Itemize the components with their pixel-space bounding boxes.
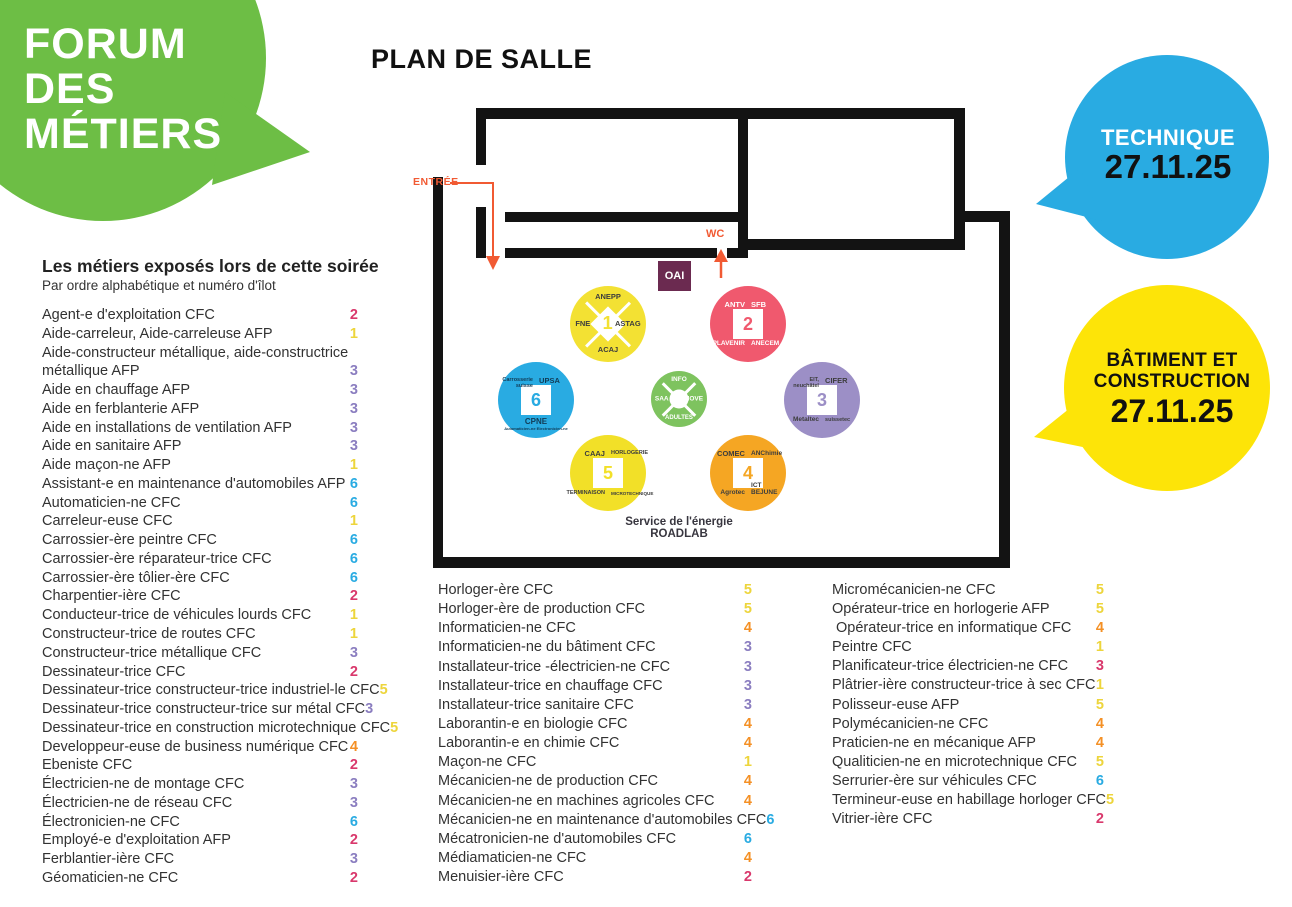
profession-label: Charpentier-ière CFC xyxy=(42,588,181,604)
profession-label: Mécanicien-ne en machines agricoles CFC xyxy=(438,793,714,809)
profession-label: Carreleur-euse CFC xyxy=(42,513,173,529)
stand-number: 6 xyxy=(1096,773,1104,789)
list-item: Constructeur-trice métallique CFC3 xyxy=(42,645,358,664)
org-label: SFB xyxy=(751,301,766,309)
stand-number: 1 xyxy=(350,513,358,529)
stand-number: 2 xyxy=(350,307,358,323)
list-item: Automaticien-ne CFC6 xyxy=(42,495,358,514)
stand-number: 3 xyxy=(350,438,358,454)
profession-label: Informaticien-ne CFC xyxy=(438,620,576,636)
profession-label: Aide en installations de ventilation AFP xyxy=(42,420,292,436)
stand-number: 4 xyxy=(1096,735,1104,751)
stand-number: 5 xyxy=(1096,582,1104,598)
list-item: Mécanicien-ne de production CFC4 xyxy=(438,773,752,792)
stand-number: 1 xyxy=(350,626,358,642)
profession-label: Dessinateur-trice constructeur-trice ind… xyxy=(42,682,380,698)
entrance-arrow xyxy=(450,183,500,270)
stand-number: 3 xyxy=(744,659,752,675)
stand-info: INFOSAAMOVEADULTES xyxy=(651,371,707,427)
org-label: CIFER xyxy=(825,377,848,385)
org-label: EIT, neuchâtel xyxy=(793,377,819,389)
stand-number: 2 xyxy=(350,757,358,773)
divider-line xyxy=(710,435,786,438)
list-item: Aide en ferblanterie AFP3 xyxy=(42,401,358,420)
org-label: suissetec xyxy=(825,417,850,423)
stand-number: 3 xyxy=(744,678,752,694)
profession-label: Installateur-trice en chauffage CFC xyxy=(438,678,663,694)
stand-number: 6 xyxy=(350,814,358,830)
profession-label: Médiamaticien-ne CFC xyxy=(438,850,586,866)
profession-label: Horloger-ère de production CFC xyxy=(438,601,645,617)
org-label: Automaticien-ne Electronicien-ne xyxy=(498,427,574,431)
list-item: Installateur-trice en chauffage CFC3 xyxy=(438,678,752,697)
stand-number: 2 xyxy=(744,869,752,885)
stand-number: 1 xyxy=(744,754,752,770)
profession-label: Opérateur-trice en horlogerie AFP xyxy=(832,601,1050,617)
org-label: ANECEM xyxy=(751,340,779,347)
technique-date: 27.11.25 xyxy=(1068,148,1268,186)
org-label: COMEC xyxy=(717,450,745,458)
profession-label: Developpeur-euse de business numérique C… xyxy=(42,739,348,755)
stand-number: 6 xyxy=(350,551,358,567)
org-label: ICT BEJUNE xyxy=(751,482,777,496)
list-item: Opérateur-trice en informatique CFC4 xyxy=(832,620,1104,639)
profession-label: Employé-e d'exploitation AFP xyxy=(42,832,231,848)
list-item: Électronicien-ne CFC6 xyxy=(42,814,358,833)
profession-label: Constructeur-trice de routes CFC xyxy=(42,626,256,642)
profession-label: Aide maçon-ne AFP xyxy=(42,457,171,473)
profession-label: Assistant-e en maintenance d'automobiles… xyxy=(42,476,345,492)
list-column-right: Micromécanicien-ne CFC5Opérateur-trice e… xyxy=(832,582,1104,830)
list-item: Polisseur-euse AFP5 xyxy=(832,697,1104,716)
brand-line-2: DES xyxy=(24,67,222,112)
list-item: Informaticien-ne CFC4 xyxy=(438,620,752,639)
stand-number: 5 xyxy=(1096,754,1104,770)
stand-number: 1 xyxy=(1096,639,1104,655)
stand-number: 2 xyxy=(1096,811,1104,827)
org-label: FNE xyxy=(575,320,590,328)
stand-number: 3 xyxy=(365,701,373,717)
list-item: Agent-e d'exploitation CFC2 xyxy=(42,307,358,326)
profession-label: métallique AFP xyxy=(42,363,140,379)
entrance-label: ENTRÉE xyxy=(413,176,459,188)
stand-number: 6 xyxy=(766,812,774,828)
list-item: Aide en chauffage AFP3 xyxy=(42,382,358,401)
list-item: Peintre CFC1 xyxy=(832,639,1104,658)
profession-label: Micromécanicien-ne CFC xyxy=(832,582,996,598)
stand-5: 5CAAJHORLOGERIETERMINAISONMICROTECHNIQUE xyxy=(570,435,646,511)
stand-number: 4 xyxy=(744,793,752,809)
oai-label: OAI xyxy=(658,261,691,291)
profession-label: Laborantin-e en biologie CFC xyxy=(438,716,627,732)
stand-number: 3 xyxy=(350,795,358,811)
profession-label: Plâtrier-ière constructeur-trice à sec C… xyxy=(832,677,1096,693)
profession-label: Aide-constructeur métallique, aide-const… xyxy=(42,345,348,361)
stand-number: 6 xyxy=(350,532,358,548)
profession-label: Électricien-ne de montage CFC xyxy=(42,776,244,792)
org-label: ASTAG xyxy=(615,320,641,328)
stand-number: 3 xyxy=(744,639,752,655)
profession-label: Polymécanicien-ne CFC xyxy=(832,716,988,732)
org-label: PLAVENIR xyxy=(713,340,745,347)
stand-number: 3 xyxy=(350,363,358,379)
stand-number: 3 xyxy=(744,697,752,713)
list-item: Aide en installations de ventilation AFP… xyxy=(42,420,358,439)
profession-label: Mécanicien-ne de production CFC xyxy=(438,773,658,789)
list-item: Électricien-ne de montage CFC3 xyxy=(42,776,358,795)
org-label: Metaltec xyxy=(793,416,819,423)
profession-label: Menuisier-ière CFC xyxy=(438,869,564,885)
stand-number: 3 xyxy=(350,382,358,398)
stand-number: 4 xyxy=(1096,620,1104,636)
divider-line xyxy=(570,435,646,438)
org-label: UPSA xyxy=(539,377,560,385)
profession-label: Termineur-euse en habillage horloger CFC xyxy=(832,792,1106,808)
org-label: HORLOGERIE xyxy=(611,450,648,456)
stand-number: 5 xyxy=(1096,697,1104,713)
org-label: Agrotec xyxy=(720,489,745,496)
org-label: MOVE xyxy=(684,395,703,402)
list-item: Laborantin-e en chimie CFC4 xyxy=(438,735,752,754)
stand-number: 1 xyxy=(1096,677,1104,693)
list-item: Aide maçon-ne AFP1 xyxy=(42,457,358,476)
org-label: MICROTECHNIQUE xyxy=(611,491,653,496)
list-item: Médiamaticien-ne CFC4 xyxy=(438,850,752,869)
list-item: Ferblantier-ière CFC3 xyxy=(42,851,358,870)
profession-label: Ferblantier-ière CFC xyxy=(42,851,174,867)
list-item: Mécanicien-ne en machines agricoles CFC4 xyxy=(438,793,752,812)
list-item: Dessinateur-trice constructeur-trice ind… xyxy=(42,682,358,701)
list-item: Micromécanicien-ne CFC5 xyxy=(832,582,1104,601)
divider-line xyxy=(710,286,786,289)
org-label: ANEPP xyxy=(570,293,646,301)
stand-number: 3 xyxy=(350,851,358,867)
stand-1: 1ANEPPFNEASTAGACAJ xyxy=(570,286,646,362)
profession-label: Automaticien-ne CFC xyxy=(42,495,181,511)
org-label: CAAJ xyxy=(585,450,605,458)
list-item: Assistant-e en maintenance d'automobiles… xyxy=(42,476,358,495)
stand-number: 5 xyxy=(380,682,388,698)
profession-label: Planificateur-trice électricien-ne CFC xyxy=(832,658,1068,674)
list-item: Carrossier-ère peintre CFC6 xyxy=(42,532,358,551)
divider-line xyxy=(498,362,574,365)
profession-label: Agent-e d'exploitation CFC xyxy=(42,307,215,323)
list-item: Dessinateur-trice constructeur-trice sur… xyxy=(42,701,358,720)
list-item: Installateur-trice sanitaire CFC3 xyxy=(438,697,752,716)
stand-number: 6 xyxy=(350,570,358,586)
list-item: Géomaticien-ne CFC2 xyxy=(42,870,358,889)
profession-label: Constructeur-trice métallique CFC xyxy=(42,645,261,661)
stand-number: 6 xyxy=(744,831,752,847)
stand-number: 5 xyxy=(1106,792,1114,808)
brand-title: FORUM DES MÉTIERS xyxy=(24,22,222,157)
list-item: Aide-carreleur, Aide-carreleuse AFP1 xyxy=(42,326,358,345)
profession-label: Carrossier-ère peintre CFC xyxy=(42,532,217,548)
profession-label: Dessinateur-trice en construction microt… xyxy=(42,720,390,736)
list-item: Aide-constructeur métallique, aide-const… xyxy=(42,345,358,364)
profession-label: Informaticien-ne du bâtiment CFC xyxy=(438,639,656,655)
list-item: Constructeur-trice de routes CFC1 xyxy=(42,626,358,645)
org-label: ADULTES xyxy=(651,415,707,422)
profession-label: Qualiticien-ne en microtechnique CFC xyxy=(832,754,1077,770)
stand-number-badge: 5 xyxy=(593,458,623,488)
list-item: Menuisier-ière CFC2 xyxy=(438,869,752,888)
profession-label: Laborantin-e en chimie CFC xyxy=(438,735,619,751)
service-label-line1: Service de l'énergie xyxy=(579,516,779,528)
profession-label: Aide-carreleur, Aide-carreleuse AFP xyxy=(42,326,273,342)
stand-6: 6Carrosserie suisseUPSACPNEAutomaticien-… xyxy=(498,362,574,438)
profession-label: Ebeniste CFC xyxy=(42,757,132,773)
profession-label: Aide en chauffage AFP xyxy=(42,382,190,398)
stand-number: 3 xyxy=(350,776,358,792)
list-item: Employé-e d'exploitation AFP2 xyxy=(42,832,358,851)
list-column-middle: Horloger-ère CFC5Horloger-ère de product… xyxy=(438,582,752,888)
list-item: métallique AFP3 xyxy=(42,363,358,382)
org-label: ANTV xyxy=(725,301,745,309)
list-item: Carreleur-euse CFC1 xyxy=(42,513,358,532)
divider-line xyxy=(784,362,860,365)
stand-number: 4 xyxy=(744,735,752,751)
profession-label: Conducteur-trice de véhicules lourds CFC xyxy=(42,607,311,623)
stand-number: 5 xyxy=(744,582,752,598)
brand-line-3: MÉTIERS xyxy=(24,112,222,157)
list-item: Opérateur-trice en horlogerie AFP5 xyxy=(832,601,1104,620)
stand-number: 3 xyxy=(350,420,358,436)
profession-label: Installateur-trice -électricien-ne CFC xyxy=(438,659,670,675)
list-item: Installateur-trice -électricien-ne CFC3 xyxy=(438,659,752,678)
list-item: Mécanicien-ne en maintenance d'automobil… xyxy=(438,812,752,831)
list-item: Conducteur-trice de véhicules lourds CFC… xyxy=(42,607,358,626)
list-item: Serrurier-ère sur véhicules CFC6 xyxy=(832,773,1104,792)
profession-label: Horloger-ère CFC xyxy=(438,582,553,598)
stand-number: 3 xyxy=(350,401,358,417)
stand-4: 4COMECANChimieAgrotecICT BEJUNE xyxy=(710,435,786,511)
list-item: Électricien-ne de réseau CFC3 xyxy=(42,795,358,814)
list-subtitle: Par ordre alphabétique et numéro d'îlot xyxy=(42,278,276,293)
stand-number: 4 xyxy=(744,716,752,732)
list-item: Vitrier-ière CFC2 xyxy=(832,811,1104,830)
profession-label: Installateur-trice sanitaire CFC xyxy=(438,697,634,713)
stand-number-badge: 2 xyxy=(733,309,763,339)
stand-number: 5 xyxy=(390,720,398,736)
org-label: SAA xyxy=(655,395,669,402)
stand-number: 4 xyxy=(744,620,752,636)
batiment-label-line2: CONSTRUCTION xyxy=(1072,371,1272,393)
profession-label: Mécatronicien-ne d'automobiles CFC xyxy=(438,831,676,847)
list-item: Mécatronicien-ne d'automobiles CFC6 xyxy=(438,831,752,850)
profession-label: Aide en sanitaire AFP xyxy=(42,438,181,454)
stand-number: 4 xyxy=(744,850,752,866)
list-item: Praticien-ne en mécanique AFP4 xyxy=(832,735,1104,754)
profession-label: Dessinateur-trice constructeur-trice sur… xyxy=(42,701,365,717)
org-label: INFO xyxy=(651,376,707,383)
stand-number: 2 xyxy=(350,664,358,680)
stand-number: 1 xyxy=(350,607,358,623)
list-item: Ebeniste CFC2 xyxy=(42,757,358,776)
page-title: PLAN DE SALLE xyxy=(371,44,592,75)
stand-number: 3 xyxy=(1096,658,1104,674)
list-item: Aide en sanitaire AFP3 xyxy=(42,438,358,457)
wc-label: WC xyxy=(706,228,724,240)
list-item: Termineur-euse en habillage horloger CFC… xyxy=(832,792,1104,811)
stand-number: 1 xyxy=(603,313,613,334)
list-title: Les métiers exposés lors de cette soirée xyxy=(42,256,379,277)
profession-label: Polisseur-euse AFP xyxy=(832,697,959,713)
list-item: Plâtrier-ière constructeur-trice à sec C… xyxy=(832,677,1104,696)
profession-label: Vitrier-ière CFC xyxy=(832,811,932,827)
org-label: TERMINAISON xyxy=(566,490,605,496)
profession-label: Carrossier-ère tôlier-ère CFC xyxy=(42,570,230,586)
list-item: Charpentier-ière CFC2 xyxy=(42,588,358,607)
list-item: Polymécanicien-ne CFC4 xyxy=(832,716,1104,735)
batiment-label-line1: BÂTIMENT ET xyxy=(1072,350,1272,372)
stand-number-badge: 6 xyxy=(521,385,551,415)
list-item: Planificateur-trice électricien-ne CFC3 xyxy=(832,658,1104,677)
batiment-date: 27.11.25 xyxy=(1072,393,1272,430)
service-label-line2: ROADLAB xyxy=(579,528,779,540)
profession-label: Mécanicien-ne en maintenance d'automobil… xyxy=(438,812,766,828)
org-label: ACAJ xyxy=(570,346,646,354)
stand-number: 4 xyxy=(1096,716,1104,732)
profession-label: Peintre CFC xyxy=(832,639,912,655)
org-label: ANChimie xyxy=(751,450,782,457)
profession-label: Aide en ferblanterie AFP xyxy=(42,401,199,417)
stand-number: 4 xyxy=(350,739,358,755)
profession-label: Praticien-ne en mécanique AFP xyxy=(832,735,1036,751)
list-item: Horloger-ère CFC5 xyxy=(438,582,752,601)
profession-label: Électricien-ne de réseau CFC xyxy=(42,795,232,811)
stand-number: 5 xyxy=(1096,601,1104,617)
list-item: Dessinateur-trice en construction microt… xyxy=(42,720,358,739)
list-item: Qualiticien-ne en microtechnique CFC5 xyxy=(832,754,1104,773)
list-item: Maçon-ne CFC1 xyxy=(438,754,752,773)
list-item: Informaticien-ne du bâtiment CFC3 xyxy=(438,639,752,658)
list-item: Developpeur-euse de business numérique C… xyxy=(42,739,358,758)
stand-number-badge: 3 xyxy=(807,385,837,415)
stand-number: 5 xyxy=(744,601,752,617)
list-item: Carrossier-ère réparateur-trice CFC6 xyxy=(42,551,358,570)
list-item: Horloger-ère de production CFC5 xyxy=(438,601,752,620)
stand-3: 3EIT, neuchâtelCIFERMetaltecsuissetec xyxy=(784,362,860,438)
brand-line-1: FORUM xyxy=(24,22,222,67)
profession-label: Dessinateur-trice CFC xyxy=(42,664,185,680)
profession-label: Maçon-ne CFC xyxy=(438,754,536,770)
stand-number: 6 xyxy=(350,476,358,492)
profession-label: Carrossier-ère réparateur-trice CFC xyxy=(42,551,272,567)
list-item: Laborantin-e en biologie CFC4 xyxy=(438,716,752,735)
profession-label: Serrurier-ère sur véhicules CFC xyxy=(832,773,1037,789)
stand-number: 1 xyxy=(350,457,358,473)
profession-label: Électronicien-ne CFC xyxy=(42,814,180,830)
stand-number: 2 xyxy=(350,870,358,886)
org-label: Carrosserie suisse xyxy=(502,377,533,389)
stand-number: 6 xyxy=(350,495,358,511)
stand-2: 2ANTVSFBPLAVENIRANECEM xyxy=(710,286,786,362)
list-column-left: Agent-e d'exploitation CFC2Aide-carreleu… xyxy=(42,307,358,889)
stand-number: 3 xyxy=(350,645,358,661)
stand-number: 2 xyxy=(350,832,358,848)
profession-label: Opérateur-trice en informatique CFC xyxy=(832,620,1071,636)
stand-number: 1 xyxy=(350,326,358,342)
list-item: Carrossier-ère tôlier-ère CFC6 xyxy=(42,570,358,589)
profession-label: Géomaticien-ne CFC xyxy=(42,870,178,886)
stand-number: 2 xyxy=(350,588,358,604)
stand-number: 4 xyxy=(744,773,752,789)
list-item: Dessinateur-trice CFC2 xyxy=(42,664,358,683)
poster: FORUM DES MÉTIERS PLAN DE SALLE TECHNIQU… xyxy=(0,0,1292,907)
